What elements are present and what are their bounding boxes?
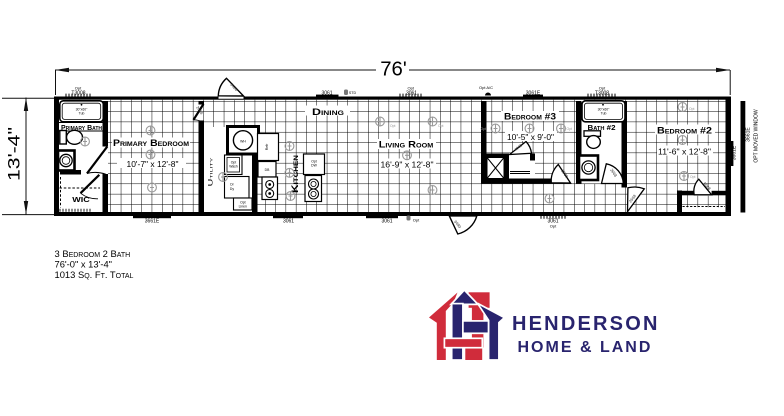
svg-text:OPT MOVED WINDOW: OPT MOVED WINDOW: [754, 109, 760, 163]
svg-text:3061: 3061: [406, 90, 417, 96]
svg-text:3061: 3061: [321, 90, 332, 96]
svg-text:3061: 3061: [283, 219, 294, 225]
svg-text:3661E: 3661E: [746, 127, 752, 142]
svg-text:Kitchen: Kitchen: [290, 155, 300, 193]
svg-text:WH: WH: [240, 139, 246, 143]
svg-text:10'-7" x 12'-8": 10'-7" x 12'-8": [127, 160, 179, 169]
svg-text:T3008: T3008: [71, 90, 85, 96]
svg-text:STD: STD: [349, 91, 357, 95]
svg-text:Tub: Tub: [79, 111, 85, 115]
svg-text:Opt: Opt: [550, 224, 557, 229]
svg-text:Primary Bedroom: Primary Bedroom: [113, 138, 189, 148]
svg-text:Bedroom #3: Bedroom #3: [504, 111, 556, 121]
svg-text:Linen: Linen: [239, 205, 247, 209]
svg-text:Refr: Refr: [265, 143, 269, 150]
svg-text:Wash: Wash: [229, 165, 238, 169]
svg-text:DB: DB: [265, 168, 270, 172]
svg-text:Living Room: Living Room: [379, 140, 434, 150]
svg-text:HOME & LAND: HOME & LAND: [518, 339, 653, 356]
svg-text:Utility: Utility: [208, 157, 215, 187]
svg-text:3 Bedroom 2 Bath: 3 Bedroom 2 Bath: [55, 248, 131, 259]
svg-text:Tub: Tub: [601, 111, 607, 115]
svg-text:DW: DW: [311, 164, 317, 168]
svg-text:Opt: Opt: [689, 107, 695, 111]
svg-text:Dining: Dining: [312, 107, 344, 117]
svg-text:11'-6" x 12'-8": 11'-6" x 12'-8": [658, 148, 711, 157]
svg-text:Dy: Dy: [230, 187, 234, 191]
svg-text:T3008: T3008: [595, 90, 609, 96]
svg-text:Opt: Opt: [481, 127, 487, 131]
svg-text:3661E: 3661E: [145, 219, 160, 225]
svg-text:WIC: WIC: [72, 197, 90, 204]
svg-text:10'-5" x 9'-0": 10'-5" x 9'-0": [507, 133, 554, 142]
svg-text:Opt A/C: Opt A/C: [479, 85, 493, 90]
svg-text:16'-9" x 12'-8": 16'-9" x 12'-8": [381, 160, 434, 169]
svg-text:13'-4": 13'-4": [5, 127, 24, 181]
svg-text:Opt: Opt: [567, 127, 573, 131]
svg-text:76': 76': [380, 59, 407, 81]
svg-text:3061: 3061: [381, 219, 392, 225]
svg-text:Opt: Opt: [390, 124, 396, 128]
svg-text:Opt: Opt: [413, 217, 420, 222]
svg-text:1013 Sq. Ft. Total: 1013 Sq. Ft. Total: [55, 269, 134, 280]
svg-text:Bedroom #2: Bedroom #2: [657, 126, 712, 136]
svg-text:HENDERSON: HENDERSON: [512, 313, 660, 335]
svg-text:3061E: 3061E: [526, 90, 541, 96]
svg-text:Opt: Opt: [690, 175, 696, 179]
svg-text:Opt: Opt: [438, 124, 444, 128]
svg-text:3661E: 3661E: [732, 145, 738, 160]
